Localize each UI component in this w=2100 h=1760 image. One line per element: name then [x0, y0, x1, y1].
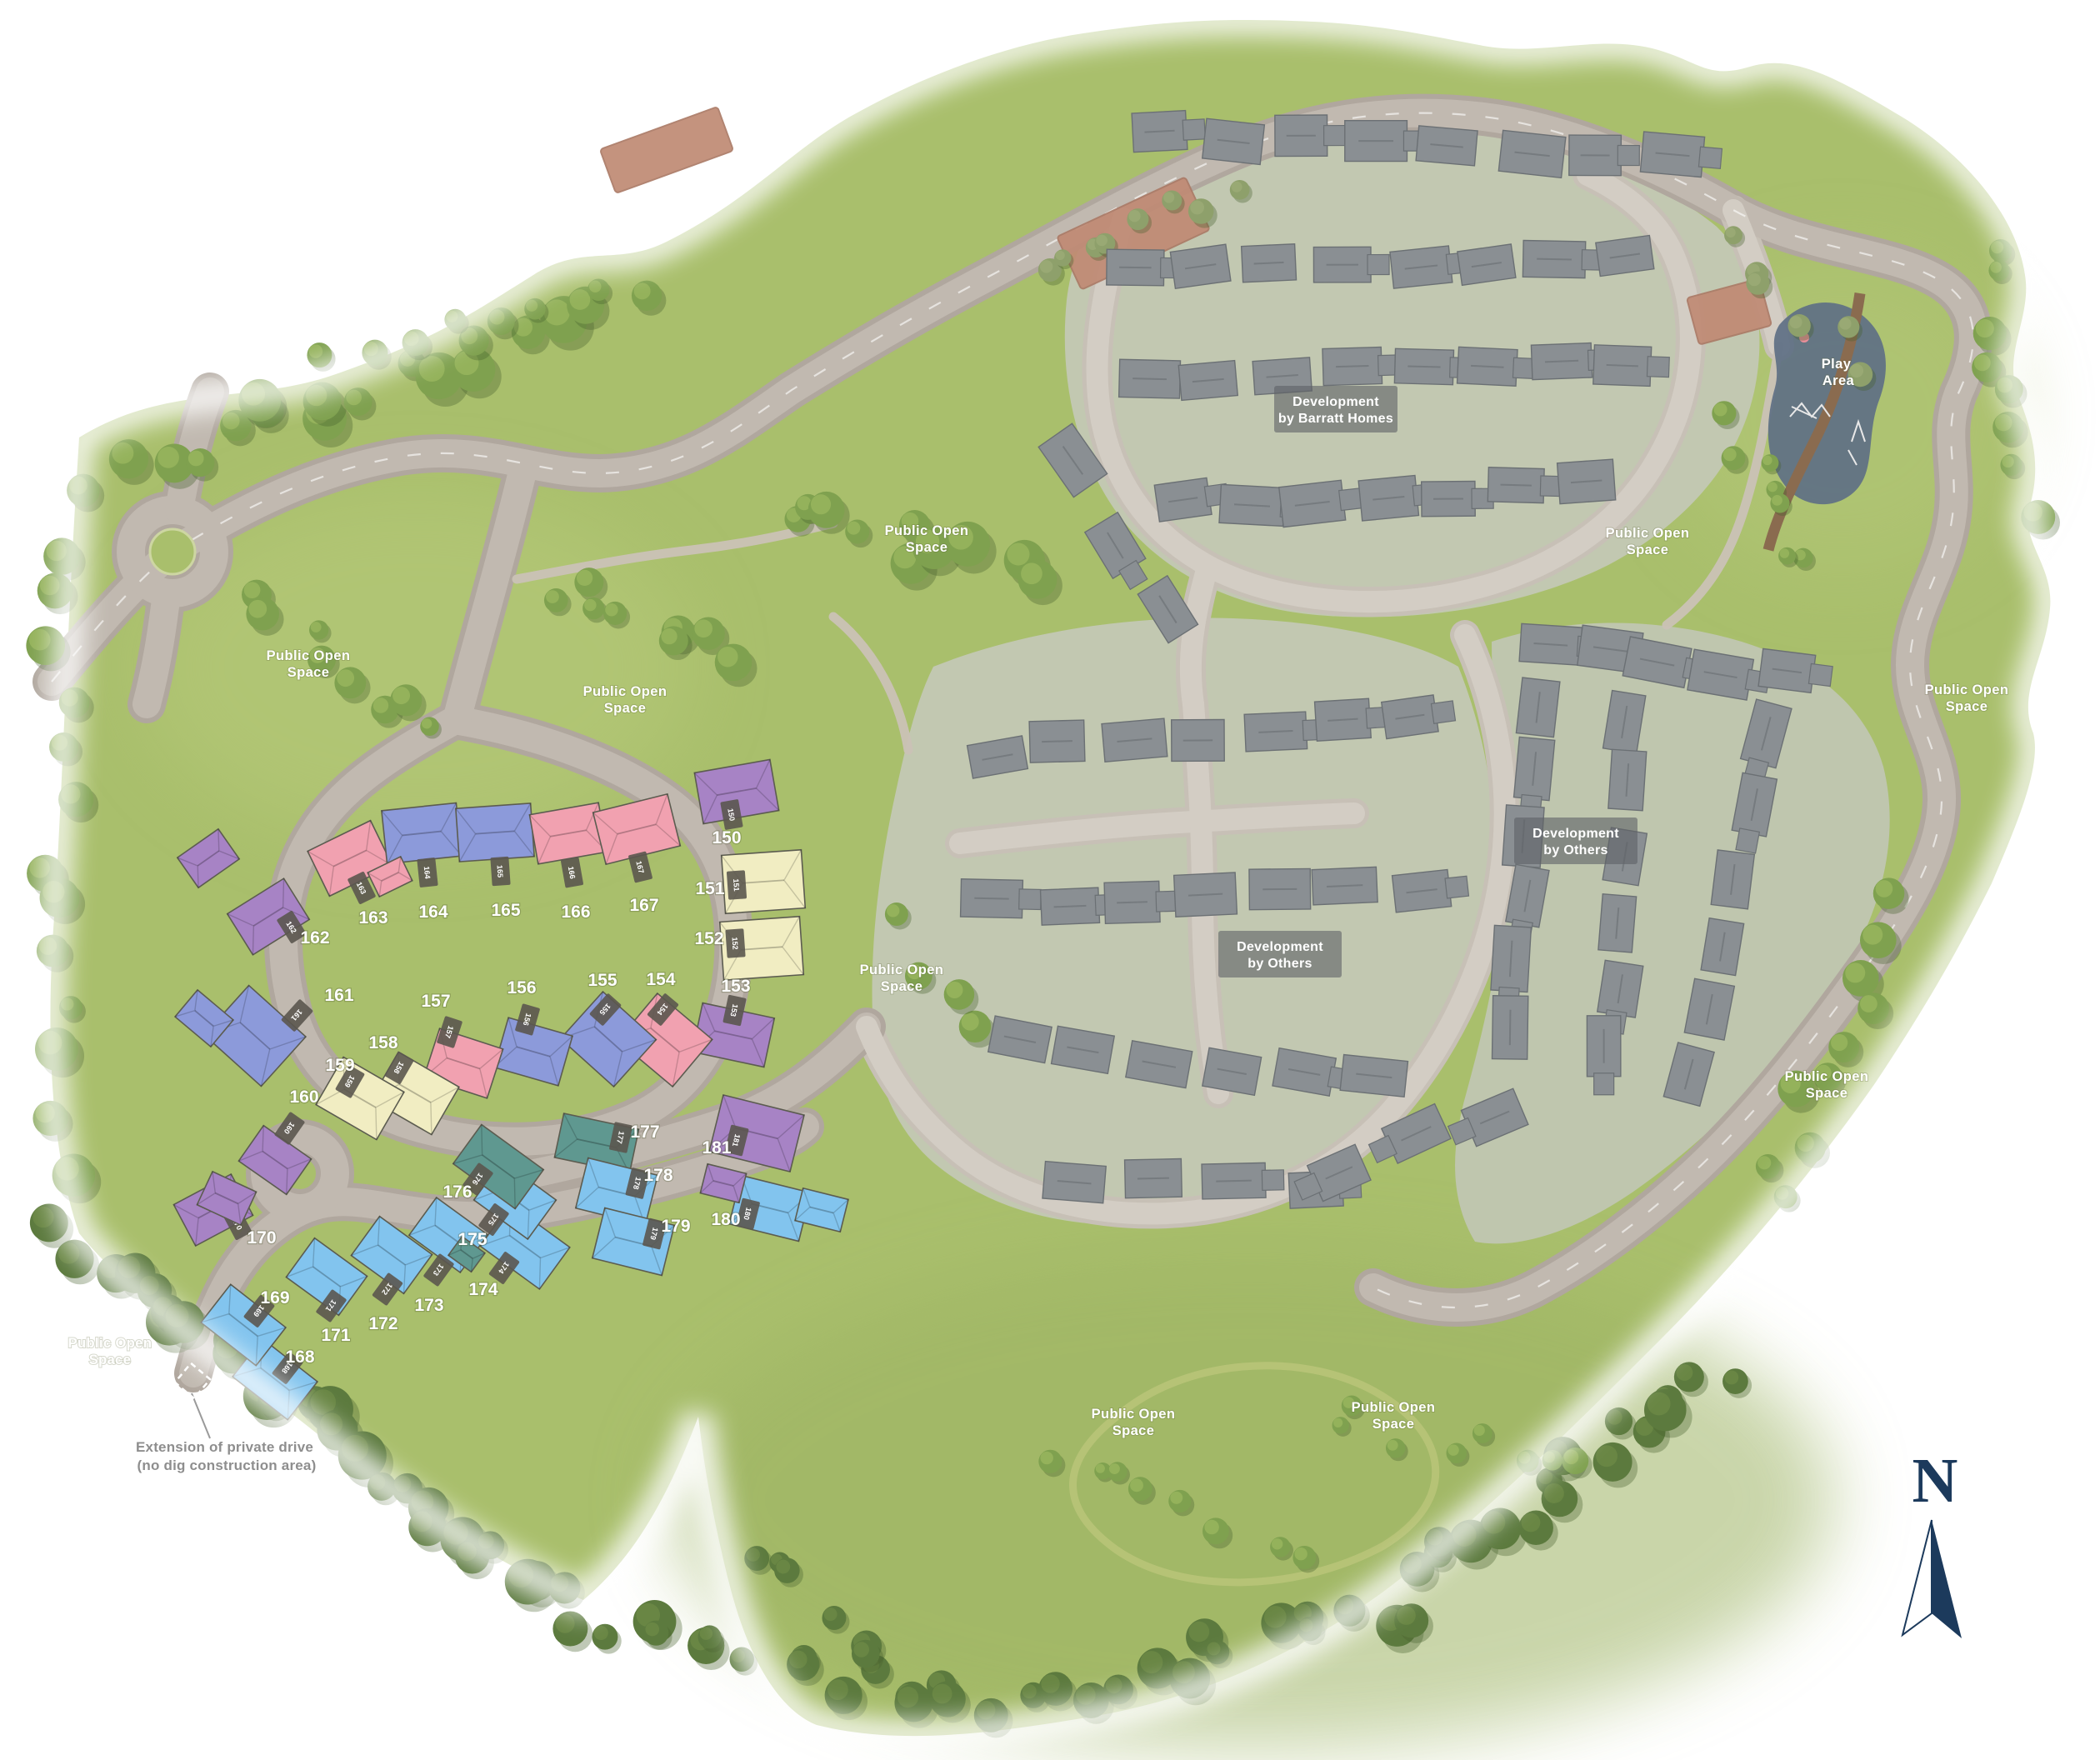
driveway-bay-number: 164	[422, 866, 432, 879]
site-plan-svg: 1501511521531541551561571581591601611621…	[0, 0, 2100, 1760]
development-zone-label: Developmentby Others	[1514, 817, 1637, 864]
grey-house	[1457, 244, 1516, 285]
plot-number-label: 164	[418, 902, 447, 922]
tree-highlight	[1128, 210, 1140, 222]
tree-highlight	[32, 1207, 53, 1227]
plot-number-label: 167	[629, 896, 658, 915]
tree-highlight	[157, 447, 179, 468]
plot-number-label: 177	[630, 1122, 659, 1142]
tree-highlight	[717, 647, 738, 667]
grey-house	[1416, 126, 1477, 166]
grey-house-wing	[1698, 147, 1722, 168]
roundabout-island	[150, 529, 195, 574]
tree-highlight	[1780, 548, 1789, 557]
grey-house	[1598, 894, 1637, 952]
grey-house-ridge	[1137, 1178, 1169, 1179]
grey-house	[1119, 359, 1181, 398]
extension-note-leader-line	[192, 1393, 210, 1438]
tree-highlight	[1207, 1642, 1221, 1656]
grey-house	[1029, 720, 1085, 762]
plot-number-label: 157	[421, 992, 450, 1011]
plot-number-label: 179	[661, 1217, 690, 1236]
plot-number-label: 150	[712, 828, 741, 847]
tree-highlight	[946, 982, 962, 998]
plot-number-label: 169	[260, 1288, 289, 1307]
tree-highlight	[1387, 1440, 1398, 1451]
tree-highlight	[1767, 482, 1777, 492]
tree-highlight	[1723, 447, 1737, 461]
plot-number-label: 178	[643, 1166, 672, 1185]
tree-highlight	[1109, 1463, 1120, 1474]
grey-house-ridge	[1042, 741, 1072, 742]
house	[382, 802, 462, 863]
tree-highlight	[1007, 543, 1029, 566]
tree-icon	[592, 1624, 621, 1654]
grey-house-wing	[1445, 876, 1468, 898]
tree-highlight	[1831, 1034, 1847, 1051]
tree-highlight	[1163, 192, 1174, 202]
plot-number-label: 151	[695, 879, 724, 898]
tree-highlight	[1860, 995, 1877, 1012]
driveway-bay-chip: 165	[490, 857, 510, 886]
tree-highlight	[847, 522, 860, 535]
tree-highlight	[897, 1687, 918, 1707]
grey-house	[1174, 872, 1237, 917]
tree-highlight	[634, 282, 651, 299]
grey-house	[1557, 459, 1616, 503]
tree-highlight	[887, 904, 899, 917]
tree-highlight	[556, 1614, 575, 1633]
grey-house-wing	[1182, 119, 1205, 140]
site-plan-canvas: 1501511521531541551561571581591601611621…	[0, 0, 2100, 1760]
plot-number-label: 171	[321, 1326, 350, 1345]
tree-highlight	[694, 619, 712, 637]
grey-house-wing	[1617, 145, 1639, 165]
development-zone-label: Developmentby Barratt Homes	[1274, 386, 1397, 432]
tree-highlight	[2002, 456, 2013, 467]
tree-highlight	[1397, 1606, 1416, 1625]
tree-highlight	[1596, 1445, 1617, 1467]
tree-highlight	[392, 687, 410, 704]
grey-house	[1498, 130, 1566, 177]
grey-house	[1202, 118, 1265, 164]
tree-highlight	[1862, 925, 1882, 945]
plot-number-label: 153	[721, 977, 750, 996]
tree-highlight	[645, 1622, 659, 1637]
tree-highlight	[373, 697, 388, 712]
driveway-bay-number: 151	[732, 878, 741, 892]
grey-house-wing	[1367, 254, 1389, 274]
plot-number-label: 176	[442, 1182, 472, 1202]
tree-highlight	[1724, 1371, 1738, 1385]
tree-highlight	[1056, 251, 1065, 260]
tree-highlight	[1839, 317, 1851, 329]
tree-highlight	[700, 1627, 712, 1640]
tree-highlight	[1522, 1513, 1541, 1532]
tree-highlight	[962, 1012, 979, 1030]
driveway-bay-chip: 164	[417, 857, 437, 887]
tree-highlight	[526, 300, 537, 312]
grey-house-ridge	[1537, 259, 1572, 260]
development-zone-label: Developmentby Others	[1218, 931, 1342, 977]
plot-number-label: 154	[646, 970, 675, 989]
tree-highlight	[1130, 1478, 1143, 1492]
tree-highlight	[854, 1642, 870, 1657]
plot-number-label: 175	[457, 1230, 487, 1249]
plot-number-label: 170	[247, 1228, 276, 1247]
plot-number-label: 181	[702, 1138, 731, 1157]
grey-house	[1125, 1158, 1182, 1197]
grey-house	[1242, 244, 1297, 282]
plot-number-label: 155	[587, 971, 617, 990]
grey-house-ridge	[1407, 366, 1440, 367]
tree-highlight	[746, 1547, 759, 1561]
grey-house	[1172, 720, 1225, 762]
tree-highlight	[346, 390, 362, 406]
grey-house	[1170, 244, 1231, 288]
tree-highlight	[1170, 1492, 1182, 1504]
tree-highlight	[1845, 962, 1865, 982]
tree-highlight	[1106, 1677, 1122, 1693]
tree-highlight	[1294, 1547, 1307, 1560]
tree-highlight	[1757, 1156, 1771, 1169]
tree-highlight	[1272, 1538, 1282, 1549]
driveway-bay-number: 165	[495, 865, 504, 878]
public-open-space-label: Public OpenSpace	[68, 1336, 152, 1367]
tree-highlight	[1544, 1483, 1564, 1503]
grey-house	[1492, 996, 1527, 1059]
grey-house	[1701, 918, 1744, 976]
house	[456, 803, 534, 862]
tree-highlight	[824, 1607, 837, 1621]
grey-house-ridge	[1336, 366, 1368, 367]
plot-number-label: 173	[414, 1296, 443, 1315]
grey-house-wing	[1262, 1170, 1284, 1191]
tree-highlight	[1677, 1364, 1693, 1381]
tree-highlight	[1040, 260, 1052, 272]
grey-house	[1596, 236, 1654, 277]
tree-highlight	[222, 412, 240, 430]
tree-highlight	[827, 1679, 848, 1700]
grey-house-ridge	[1117, 902, 1147, 902]
grey-house	[1178, 361, 1237, 401]
tree-highlight	[1041, 1674, 1059, 1692]
grey-house	[1312, 867, 1377, 904]
tree-highlight	[1333, 1418, 1342, 1427]
grey-house	[1516, 677, 1559, 737]
plot-number-label: 172	[368, 1314, 397, 1333]
tree-highlight	[1876, 880, 1893, 897]
tree-highlight	[589, 281, 602, 293]
extension-note-label: Extension of private drive (no dig const…	[136, 1439, 317, 1473]
grey-house	[1042, 1162, 1106, 1203]
driveway-bay-chip: 151	[727, 870, 747, 899]
grey-house	[1249, 868, 1311, 909]
plot-number-label: 180	[711, 1210, 740, 1229]
tree-highlight	[1647, 1392, 1671, 1416]
grey-house-ridge	[1132, 378, 1167, 379]
tree-highlight	[1762, 456, 1772, 465]
tree-highlight	[1190, 201, 1204, 215]
tree-highlight	[309, 344, 322, 357]
grey-house-wing	[1324, 126, 1346, 146]
plot-number-label: 174	[468, 1280, 497, 1299]
grey-house-wing	[1019, 889, 1042, 910]
tree-highlight	[1204, 1520, 1218, 1534]
tree-highlight	[1022, 1684, 1037, 1698]
tree-highlight	[1790, 316, 1802, 328]
tree-highlight	[1713, 402, 1727, 416]
tree-highlight	[789, 1651, 807, 1669]
plot-number-label: 165	[491, 901, 520, 920]
tree-highlight	[1447, 1444, 1458, 1455]
tree-highlight	[188, 451, 204, 467]
grey-house-ridge	[1501, 485, 1532, 486]
tree-highlight	[112, 442, 133, 464]
tree-highlight	[932, 1684, 952, 1704]
tree-highlight	[594, 1626, 608, 1640]
tree-highlight	[1747, 273, 1760, 286]
tree-highlight	[1264, 1606, 1287, 1628]
grey-house-wing	[1647, 357, 1669, 377]
tree-highlight	[1232, 182, 1242, 192]
tree-highlight	[1990, 262, 2002, 273]
north-arrow-icon-left	[1902, 1520, 1932, 1635]
tree-highlight	[584, 599, 596, 611]
plot-number-label: 168	[285, 1347, 314, 1367]
tree-highlight	[1188, 1622, 1209, 1642]
driveway-bay-chip: 152	[725, 928, 745, 957]
north-arrow-icon-right	[1932, 1520, 1962, 1638]
grey-house-ridge	[974, 898, 1008, 899]
tree-highlight	[1976, 319, 1994, 337]
tree-highlight	[422, 718, 432, 728]
grey-house-ridge	[1216, 1181, 1252, 1182]
grey-house-wing	[1736, 828, 1759, 853]
grey-house-wing	[1808, 663, 1832, 686]
compass-north-letter: N	[1912, 1446, 1958, 1516]
tree-highlight	[776, 1560, 790, 1574]
tree-highlight	[1772, 495, 1782, 506]
plot-number-label: 158	[368, 1033, 397, 1052]
plot-number-label: 156	[507, 978, 536, 997]
tree-highlight	[419, 356, 445, 382]
plot-number-label: 160	[289, 1087, 318, 1107]
plot-number-label: 163	[358, 908, 387, 927]
tree-highlight	[1096, 1464, 1105, 1473]
plot-number-label: 162	[300, 928, 329, 947]
tree-highlight	[1140, 1651, 1162, 1673]
grey-house	[1608, 749, 1647, 810]
plot-number-label: 161	[324, 986, 353, 1005]
grey-house-ridge	[1510, 1010, 1511, 1045]
tree-highlight	[1021, 562, 1042, 584]
tree-highlight	[546, 590, 559, 603]
grey-house	[1102, 718, 1167, 762]
tree-highlight	[311, 622, 322, 632]
tree-highlight	[1474, 1425, 1485, 1436]
tree-highlight	[605, 603, 617, 616]
tree-highlight	[1096, 235, 1107, 247]
tree-highlight	[244, 582, 261, 598]
brick-paving-west	[600, 107, 733, 193]
plot-number-label: 152	[694, 929, 723, 948]
tree-highlight	[811, 494, 831, 514]
tree-highlight	[248, 600, 267, 618]
grey-house	[1340, 1055, 1407, 1097]
tree-highlight	[570, 289, 591, 310]
grey-house-ridge	[1607, 365, 1638, 366]
grey-house	[1711, 850, 1754, 909]
grey-house-wing	[1594, 1073, 1614, 1095]
plot-number-label: 159	[325, 1056, 354, 1075]
tree-highlight	[1726, 227, 1736, 237]
tree-highlight	[661, 628, 677, 644]
plot-number-label: 166	[561, 902, 590, 922]
driveway-bay-number: 152	[730, 937, 739, 950]
tree-highlight	[337, 669, 354, 687]
tree-highlight	[29, 629, 51, 651]
grey-house-wing	[1431, 701, 1455, 723]
tree-highlight	[1974, 354, 1991, 371]
tree-highlight	[577, 570, 592, 586]
tree-highlight	[1040, 1452, 1052, 1464]
